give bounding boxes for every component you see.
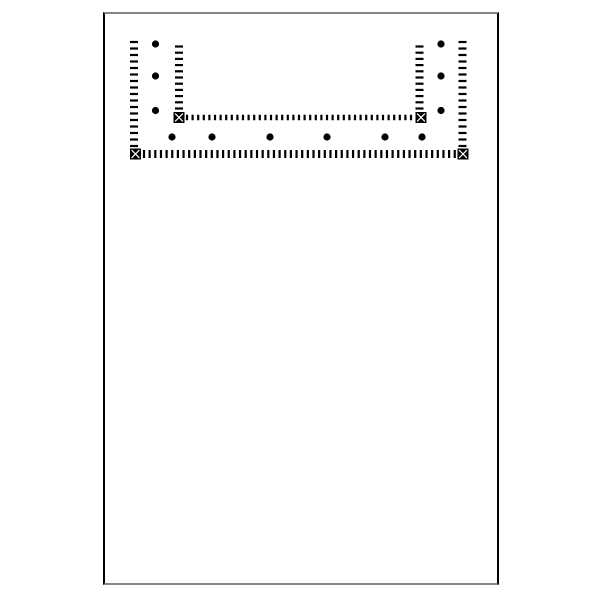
inner-bottom-wall-hatch-dash [326, 115, 328, 121]
inner-left-wall-hatch-dash [175, 45, 183, 47]
outer-bottom-wall-hatch-dash [284, 150, 286, 158]
outer-bottom-wall-hatch-dash [403, 150, 405, 158]
outer-right-wall-hatch-dash [459, 73, 467, 75]
inner-left-wall-hatch-dash [175, 89, 183, 91]
outer-bottom-wall-hatch-dash [267, 150, 269, 158]
point-dot [323, 133, 330, 140]
inner-bottom-wall-hatch-dash [298, 115, 300, 121]
outer-left-wall-hatch-dash [130, 145, 138, 147]
outer-bottom-wall-hatch-dash [143, 150, 145, 158]
outer-bottom-wall-hatch-dash [279, 150, 281, 158]
outer-bottom-wall-hatch-dash [222, 150, 224, 158]
outer-left-wall-hatch-dash [130, 80, 138, 82]
outer-right-wall-hatch-dash [459, 99, 467, 101]
outer-bottom-wall-hatch-dash [290, 150, 292, 158]
inner-bottom-wall-hatch-dash [348, 115, 350, 121]
inner-bottom-wall-hatch-dash [315, 115, 317, 121]
inner-bottom-wall-hatch-dash [393, 115, 395, 121]
inner-bottom-wall-hatch-dash [225, 115, 227, 121]
outer-bottom-wall-hatch-dash [352, 150, 354, 158]
outer-right-wall-hatch-dash [459, 60, 467, 62]
inner-left-wall-hatch-dash [175, 70, 183, 72]
outer-bottom-wall-hatch-dash [182, 150, 184, 158]
inner-left-wall-hatch-dash [175, 76, 183, 78]
point-dot [152, 107, 159, 114]
outer-bottom-wall-hatch-dash [420, 150, 422, 158]
outer-bottom-wall-hatch-dash [171, 150, 173, 158]
inner-bottom-wall-hatch-dash [382, 115, 384, 121]
inner-bottom-wall-hatch-dash [332, 115, 334, 121]
outer-left-wall-hatch-dash [130, 132, 138, 134]
outer-bottom-wall-hatch-dash [346, 150, 348, 158]
outer-bottom-wall-hatch-dash [307, 150, 309, 158]
inner-bottom-wall-hatch-dash [371, 115, 373, 121]
outer-bottom-wall-hatch-dash [211, 150, 213, 158]
outer-left-wall-hatch-dash [130, 125, 138, 127]
outer-left-wall-hatch-dash [130, 119, 138, 121]
outer-bottom-wall-hatch-dash [256, 150, 258, 158]
inner-bottom-wall-hatch-dash [287, 115, 289, 121]
outer-left-wall-hatch-dash [130, 138, 138, 140]
inner-bottom-wall-hatch-dash [231, 115, 233, 121]
inner-bottom-wall-hatch-dash [399, 115, 401, 121]
inner-right-wall-hatch-dash [416, 95, 424, 97]
point-dot [418, 133, 425, 140]
inner-right-wall-hatch-dash [416, 83, 424, 85]
outer-right-wall-hatch-dash [459, 132, 467, 134]
outer-bottom-wall-hatch-dash [149, 150, 151, 158]
outer-bottom-wall-hatch-dash [335, 150, 337, 158]
outer-bottom-wall-hatch-dash [188, 150, 190, 158]
inner-left-wall-hatch-dash [175, 64, 183, 66]
inner-bottom-wall-hatch-dash [259, 115, 261, 121]
inner-bottom-wall-hatch-dash [376, 115, 378, 121]
outer-right-wall-hatch-dash [459, 125, 467, 127]
outer-right-wall-hatch-dash [459, 145, 467, 147]
outer-bottom-wall-hatch-dash [216, 150, 218, 158]
outer-bottom-wall-hatch-dash [301, 150, 303, 158]
inner-bottom-wall-hatch-dash [248, 115, 250, 121]
outer-bottom-wall-hatch-dash [380, 150, 382, 158]
inner-bottom-wall-hatch-dash [343, 115, 345, 121]
outer-left-wall-hatch-dash [130, 47, 138, 49]
inner-bottom-wall-hatch-dash [281, 115, 283, 121]
outer-right-wall-hatch-dash [459, 47, 467, 49]
outer-left-wall-hatch-dash [130, 73, 138, 75]
outer-bottom-wall-hatch-dash [295, 150, 297, 158]
outer-bottom-wall-hatch-dash [341, 150, 343, 158]
inner-bottom-wall-hatch-dash [236, 115, 238, 121]
outer-right-wall-hatch-dash [459, 80, 467, 82]
point-dot [266, 133, 273, 140]
inner-bottom-wall-hatch-dash [203, 115, 205, 121]
outer-bottom-wall-hatch-dash [228, 150, 230, 158]
inner-bottom-wall-hatch-dash [186, 115, 188, 121]
outer-right-wall-hatch-dash [459, 67, 467, 69]
point-dot [437, 107, 444, 114]
inner-bottom-wall-hatch-dash [404, 115, 406, 121]
outer-bottom-wall-hatch-dash [431, 150, 433, 158]
outer-bottom-wall-hatch-dash [194, 150, 196, 158]
outer-bottom-wall-hatch-dash [448, 150, 450, 158]
inner-bottom-wall-hatch-dash [320, 115, 322, 121]
outer-bottom-wall-hatch-dash [262, 150, 264, 158]
outer-bottom-wall-hatch-dash [154, 150, 156, 158]
outer-bottom-wall-hatch-dash [363, 150, 365, 158]
inner-bottom-wall-hatch-dash [304, 115, 306, 121]
outer-bottom-wall-hatch-dash [329, 150, 331, 158]
outer-bottom-wall-hatch-dash [205, 150, 207, 158]
inner-right-wall-hatch-dash [416, 58, 424, 60]
outer-left-wall-hatch-dash [130, 86, 138, 88]
inner-bottom-wall-hatch-dash [360, 115, 362, 121]
outer-right-wall-hatch-dash [459, 41, 467, 43]
outer-left-wall-hatch-dash [130, 99, 138, 101]
outer-left-wall-hatch-dash [130, 106, 138, 108]
inner-left-wall-hatch-dash [175, 58, 183, 60]
inner-bottom-wall-hatch-dash [292, 115, 294, 121]
inner-right-wall-hatch-dash [416, 64, 424, 66]
outer-left-wall-hatch-dash [130, 112, 138, 114]
point-dot [152, 40, 159, 47]
point-dot [152, 72, 159, 79]
inner-left-wall-hatch-dash [175, 83, 183, 85]
outer-left-wall-hatch-dash [130, 67, 138, 69]
outer-bottom-wall-hatch-dash [245, 150, 247, 158]
inner-bottom-wall-hatch-dash [337, 115, 339, 121]
outer-left-wall-hatch-dash [130, 60, 138, 62]
outer-bottom-wall-hatch-dash [454, 150, 456, 158]
inner-right-wall-hatch-dash [416, 76, 424, 78]
outer-bottom-wall-hatch-dash [250, 150, 252, 158]
outer-left-wall-hatch-dash [130, 93, 138, 95]
inner-bottom-wall-hatch-dash [354, 115, 356, 121]
inner-right-wall-hatch-dash [416, 107, 424, 109]
outer-bottom-wall-hatch-dash [177, 150, 179, 158]
outer-bottom-wall-hatch-dash [392, 150, 394, 158]
point-dot [437, 72, 444, 79]
outer-bottom-wall-hatch-dash [166, 150, 168, 158]
outer-right-wall-hatch-dash [459, 93, 467, 95]
outer-right-wall-hatch-dash [459, 54, 467, 56]
inner-bottom-wall-hatch-dash [208, 115, 210, 121]
inner-right-wall-hatch-dash [416, 101, 424, 103]
inner-bottom-wall-hatch-dash [214, 115, 216, 121]
wall-plan-diagram [0, 0, 600, 600]
inner-bottom-wall-hatch-dash [220, 115, 222, 121]
inner-bottom-wall-hatch-dash [388, 115, 390, 121]
outer-right-wall-hatch-dash [459, 106, 467, 108]
inner-right-wall-hatch-dash [416, 89, 424, 91]
outer-bottom-wall-hatch-dash [358, 150, 360, 158]
outer-right-wall-hatch-dash [459, 112, 467, 114]
outer-right-wall-hatch-dash [459, 138, 467, 140]
outer-bottom-wall-hatch-dash [386, 150, 388, 158]
inner-bottom-wall-hatch-dash [365, 115, 367, 121]
outer-right-wall-hatch-dash [459, 119, 467, 121]
outer-left-wall-hatch-dash [130, 41, 138, 43]
inner-left-wall-hatch-dash [175, 52, 183, 54]
outer-bottom-wall-hatch-dash [273, 150, 275, 158]
outer-bottom-wall-hatch-dash [425, 150, 427, 158]
inner-left-wall-hatch-dash [175, 101, 183, 103]
inner-bottom-wall-hatch-dash [410, 115, 412, 121]
inner-left-wall-hatch-dash [175, 107, 183, 109]
outer-bottom-wall-hatch-dash [375, 150, 377, 158]
inner-bottom-wall-hatch-dash [309, 115, 311, 121]
inner-bottom-wall-hatch-dash [270, 115, 272, 121]
outer-bottom-wall-hatch-dash [324, 150, 326, 158]
inner-bottom-wall-hatch-dash [192, 115, 194, 121]
outer-right-wall-hatch-dash [459, 86, 467, 88]
inner-bottom-wall-hatch-dash [242, 115, 244, 121]
inner-right-wall-hatch-dash [416, 52, 424, 54]
app-canvas [0, 0, 600, 600]
outer-bottom-wall-hatch-dash [408, 150, 410, 158]
inner-bottom-wall-hatch-dash [253, 115, 255, 121]
outer-bottom-wall-hatch-dash [160, 150, 162, 158]
outer-bottom-wall-hatch-dash [442, 150, 444, 158]
point-dot [208, 133, 215, 140]
outer-bottom-wall-hatch-dash [437, 150, 439, 158]
inner-right-wall-hatch-dash [416, 45, 424, 47]
outer-bottom-wall-hatch-dash [369, 150, 371, 158]
outer-bottom-wall-hatch-dash [199, 150, 201, 158]
outer-bottom-wall-hatch-dash [233, 150, 235, 158]
outer-bottom-wall-hatch-dash [397, 150, 399, 158]
inner-bottom-wall-hatch-dash [276, 115, 278, 121]
inner-bottom-wall-hatch-dash [264, 115, 266, 121]
inner-right-wall-hatch-dash [416, 70, 424, 72]
point-dot [381, 133, 388, 140]
outer-left-wall-hatch-dash [130, 54, 138, 56]
inner-bottom-wall-hatch-dash [197, 115, 199, 121]
inner-left-wall-hatch-dash [175, 95, 183, 97]
outer-bottom-wall-hatch-dash [318, 150, 320, 158]
outer-bottom-wall-hatch-dash [414, 150, 416, 158]
outer-bottom-wall-hatch-dash [239, 150, 241, 158]
point-dot [437, 40, 444, 47]
point-dot [168, 133, 175, 140]
outer-bottom-wall-hatch-dash [312, 150, 314, 158]
